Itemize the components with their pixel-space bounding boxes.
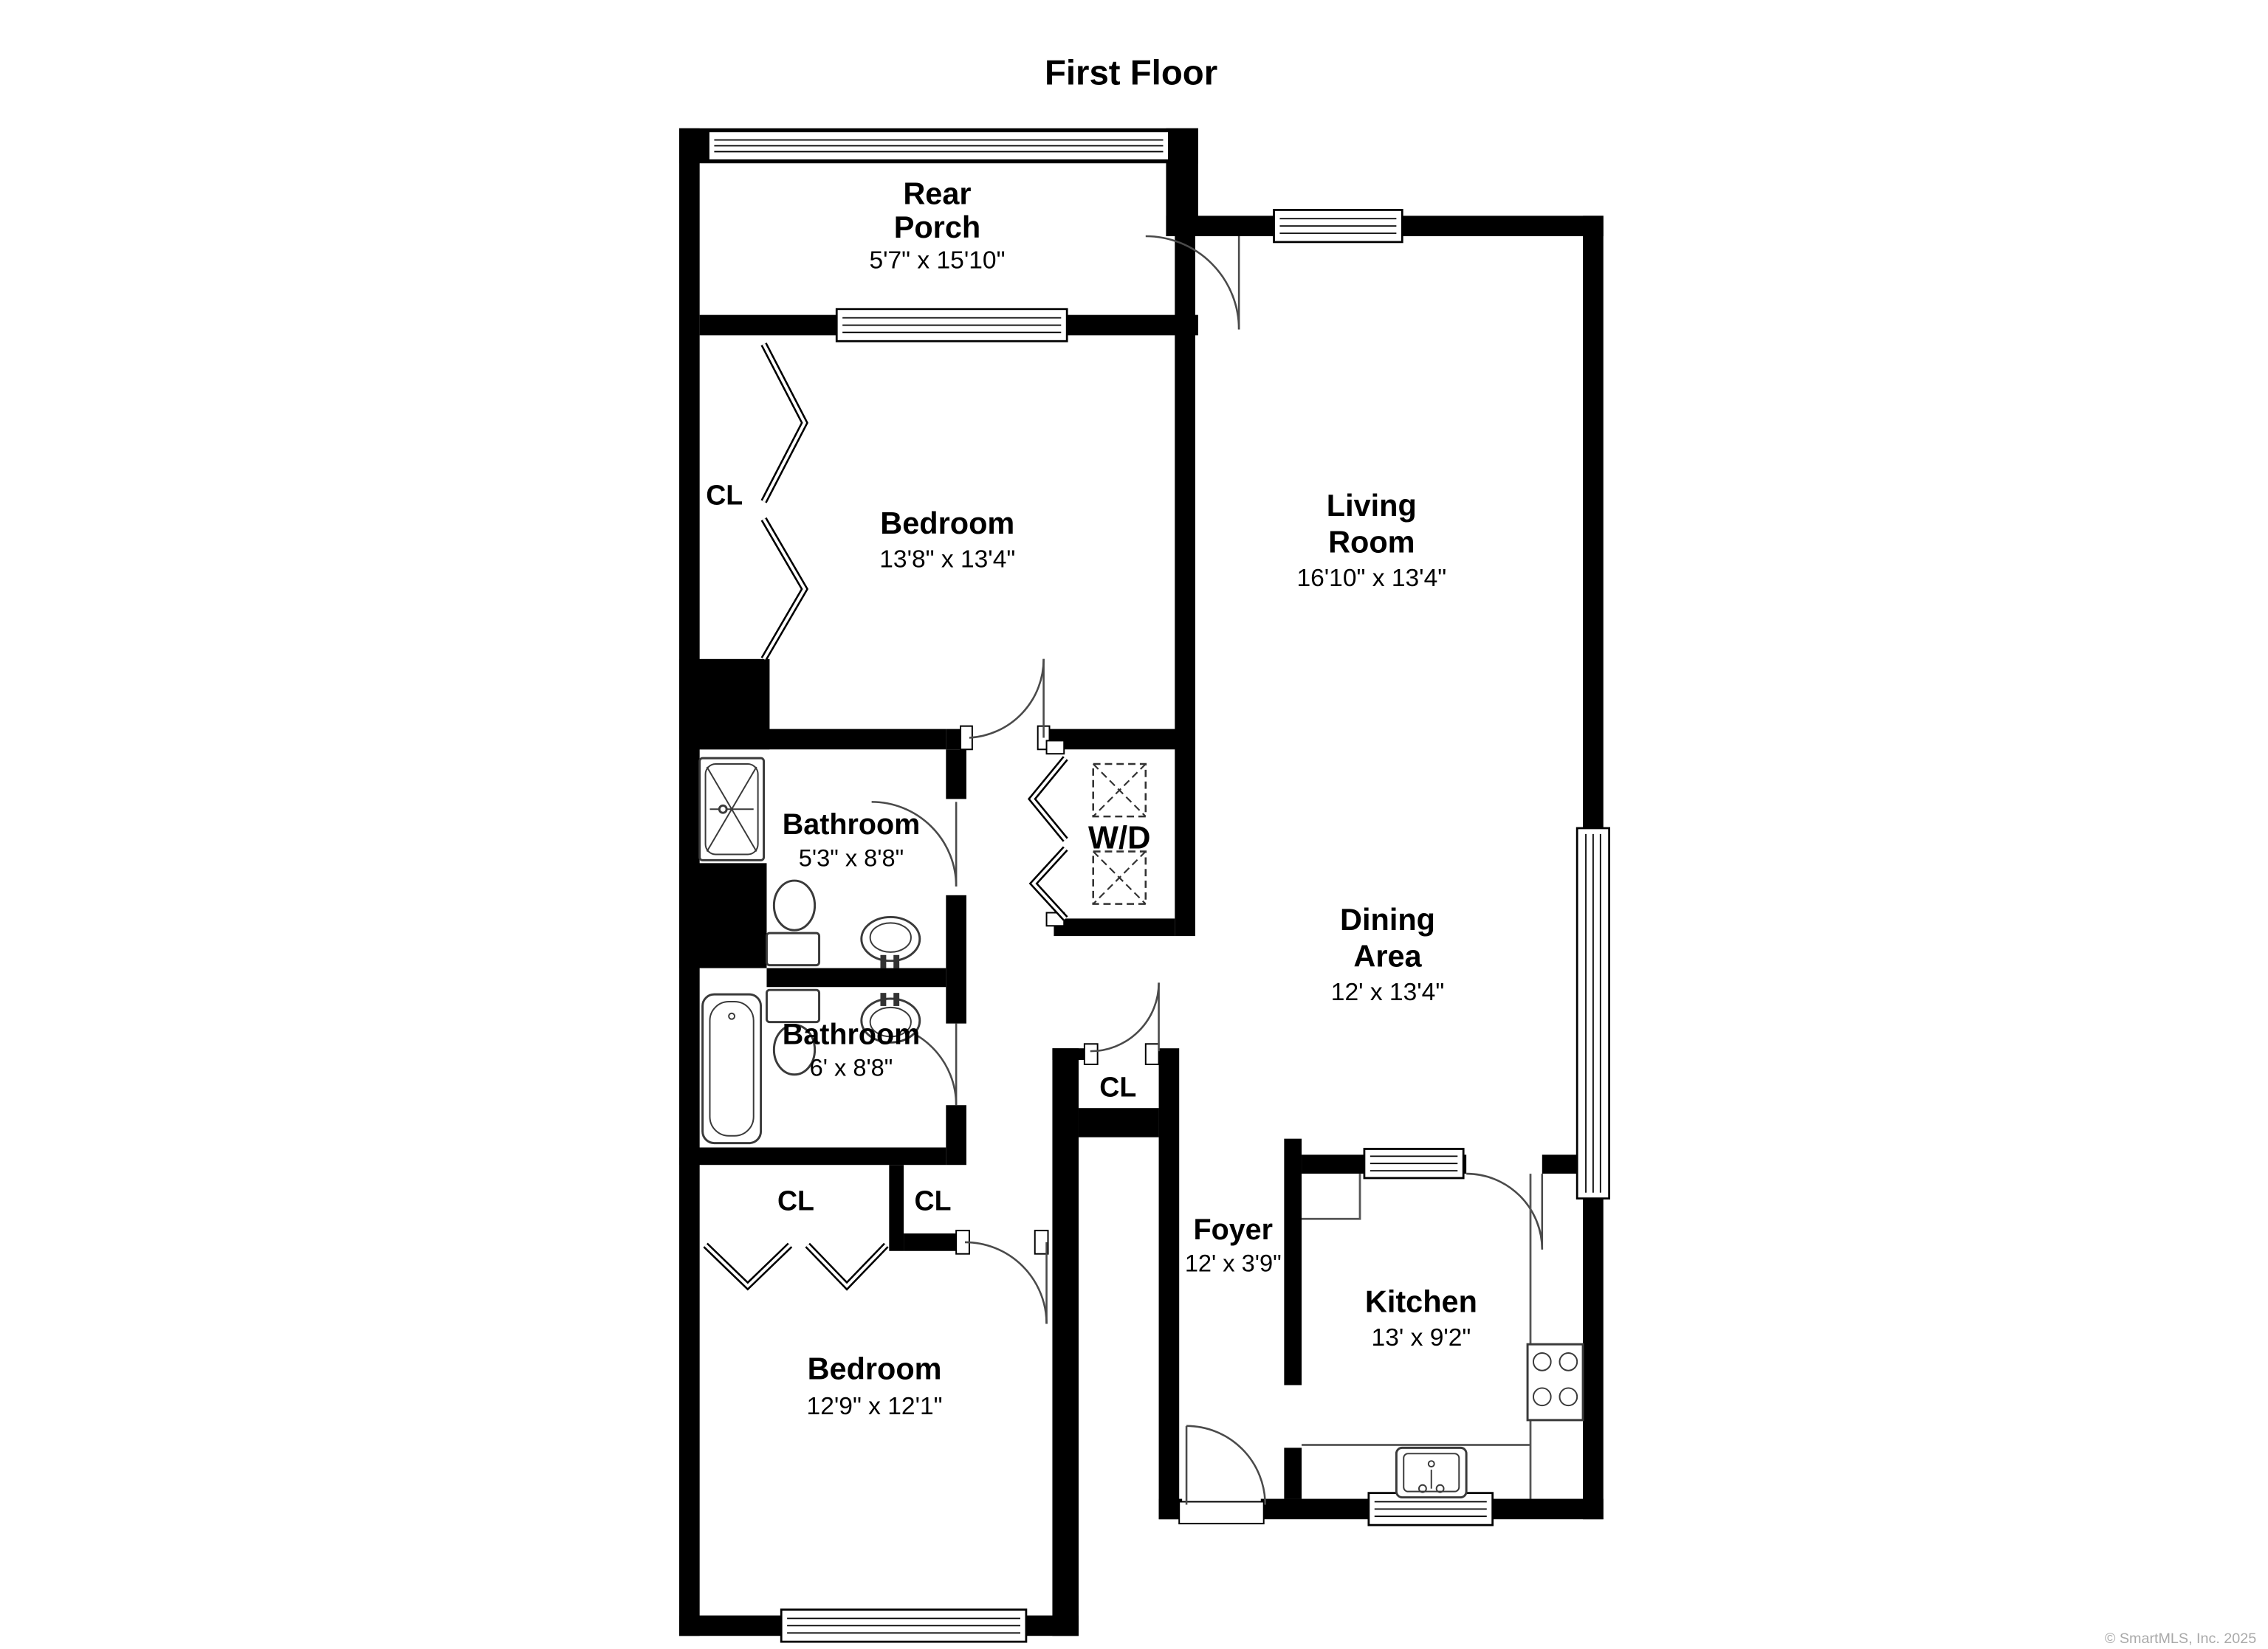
room-label-bedroom-top: Bedroom 13'8" x 13'4" <box>879 506 1015 573</box>
closet-label-bedroom-bottom-right: CL <box>915 1185 952 1216</box>
bathtub <box>703 994 761 1143</box>
toilet-upper <box>766 881 819 965</box>
bedroom-bottom-window <box>781 1610 1026 1642</box>
closet-small-door <box>956 1230 1048 1323</box>
foyer-name: Foyer <box>1193 1213 1273 1246</box>
kitchen-pass-window <box>1364 1149 1463 1178</box>
page-title: First Floor <box>1045 54 1217 93</box>
floor-plan: First Floor Rear Porch 5'7" x 15'10" Bed… <box>0 0 2268 1649</box>
laundry-bifolds <box>1032 740 1065 926</box>
porch-top-window <box>709 131 1169 161</box>
bathroom-upper-name: Bathroom <box>783 808 920 841</box>
dining-name-1: Dining <box>1340 902 1435 937</box>
hall-closet-door <box>1085 982 1159 1064</box>
kitchen-dims: 13' x 9'2" <box>1372 1324 1471 1352</box>
dining-dims: 12' x 13'4" <box>1331 979 1444 1006</box>
rear-porch-name-2: Porch <box>894 210 981 244</box>
room-label-rear-porch: Rear Porch 5'7" x 15'10" <box>869 176 1005 275</box>
closet-label-bedroom-bottom-left: CL <box>777 1185 814 1216</box>
room-label-kitchen: Kitchen 13' x 9'2" <box>1365 1284 1477 1352</box>
living-room-window <box>1274 210 1403 241</box>
bathroom-lower-dims: 6' x 8'8" <box>810 1055 893 1081</box>
dining-name-2: Area <box>1353 939 1422 974</box>
room-label-bathroom-upper: Bathroom 5'3" x 8'8" <box>783 808 920 871</box>
dining-east-window <box>1577 828 1609 1199</box>
bedroom-top-door <box>961 659 1049 749</box>
bedroom-top-dims: 13'8" x 13'4" <box>879 545 1015 573</box>
floor-plan-page: First Floor Rear Porch 5'7" x 15'10" Bed… <box>0 0 2268 1649</box>
living-name-2: Room <box>1328 525 1415 560</box>
kitchen-name: Kitchen <box>1365 1284 1477 1319</box>
bedroom-bottom-dims: 12'9" x 12'1" <box>807 1393 943 1420</box>
bathroom-upper-dims: 5'3" x 8'8" <box>799 844 904 871</box>
room-label-living-room: Living Room 16'10" x 13'4" <box>1296 488 1446 592</box>
bedroom-top-name: Bedroom <box>880 506 1014 540</box>
kitchen-sink <box>1396 1447 1466 1497</box>
washer-box <box>1093 764 1146 816</box>
rear-porch-dims: 5'7" x 15'10" <box>869 247 1005 274</box>
foyer-dims: 12' x 3'9" <box>1185 1250 1282 1276</box>
closet-label-bedroom-top: CL <box>706 479 743 510</box>
room-label-bedroom-bottom: Bedroom 12'9" x 12'1" <box>807 1352 943 1420</box>
bedroom-top-closet-bifolds <box>764 344 805 659</box>
rear-porch-name-1: Rear <box>903 176 971 211</box>
room-label-foyer: Foyer 12' x 3'9" <box>1185 1213 1282 1276</box>
dryer-box <box>1093 852 1146 904</box>
living-dims: 16'10" x 13'4" <box>1296 565 1446 592</box>
bedroom-bottom-closet-bifolds <box>706 1245 887 1286</box>
room-label-dining-area: Dining Area 12' x 13'4" <box>1331 902 1444 1006</box>
entry-door <box>1179 1426 1265 1524</box>
bathroom-lower-name: Bathroom <box>783 1018 920 1050</box>
porch-bedroom-window <box>836 309 1067 341</box>
watermark: © SmartMLS, Inc. 2025 <box>2105 1631 2256 1647</box>
bedroom-bottom-name: Bedroom <box>808 1352 942 1386</box>
living-name-1: Living <box>1327 488 1417 523</box>
shower <box>700 758 764 860</box>
stove <box>1528 1344 1583 1420</box>
closet-label-hall: CL <box>1099 1071 1136 1102</box>
laundry-label: W/D <box>1088 821 1150 856</box>
sink-upper <box>862 917 920 968</box>
